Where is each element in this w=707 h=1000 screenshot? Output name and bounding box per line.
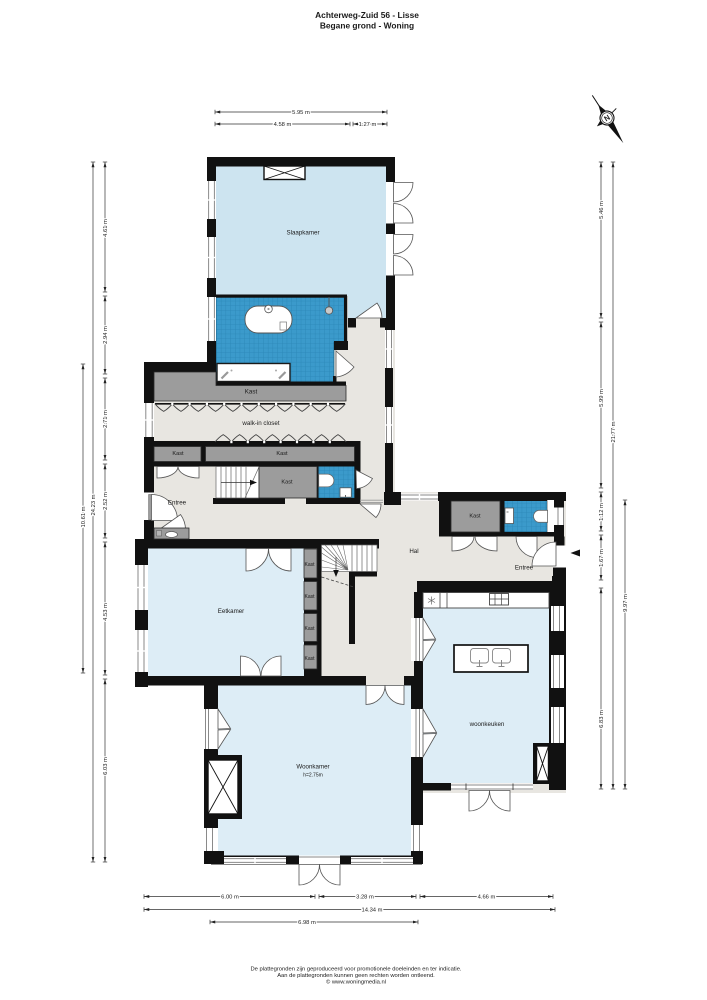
svg-text:© www.woningmedia.nl: © www.woningmedia.nl: [326, 979, 386, 986]
svg-text:Woonkamer: Woonkamer: [296, 764, 329, 771]
svg-text:1.12 m: 1.12 m: [599, 503, 605, 521]
svg-text:woonkeuken: woonkeuken: [469, 721, 505, 728]
svg-text:Entree: Entree: [168, 500, 187, 507]
svg-text:2.71 m: 2.71 m: [103, 410, 109, 428]
svg-text:Kast: Kast: [276, 451, 288, 457]
svg-text:6.98 m: 6.98 m: [298, 920, 316, 926]
svg-text:14.34 m: 14.34 m: [362, 908, 383, 914]
svg-text:1.27 m: 1.27 m: [359, 122, 377, 128]
svg-text:1.67 m: 1.67 m: [599, 549, 605, 567]
svg-text:6.03 m: 6.03 m: [103, 757, 109, 775]
svg-text:5.46 m: 5.46 m: [599, 201, 605, 219]
svg-text:h=2.75m: h=2.75m: [303, 773, 323, 779]
svg-text:2.52 m: 2.52 m: [103, 492, 109, 510]
svg-text:6.00 m: 6.00 m: [221, 895, 239, 901]
svg-text:10.61 m: 10.61 m: [81, 506, 87, 527]
svg-text:6.83 m: 6.83 m: [599, 710, 605, 728]
svg-text:Kast: Kast: [469, 514, 481, 520]
svg-text:4.66 m: 4.66 m: [478, 895, 496, 901]
svg-text:walk-in closet: walk-in closet: [241, 420, 279, 427]
svg-text:5.95 m: 5.95 m: [292, 110, 310, 116]
svg-text:Kast: Kast: [304, 656, 315, 662]
svg-text:21.77 m: 21.77 m: [611, 421, 617, 442]
svg-text:4.61 m: 4.61 m: [103, 219, 109, 237]
svg-text:De plattegronden zijn geproduc: De plattegronden zijn geproduceerd voor …: [250, 967, 461, 973]
svg-text:4.53 m: 4.53 m: [103, 603, 109, 621]
svg-text:3.28 m: 3.28 m: [356, 895, 374, 901]
svg-text:Kast: Kast: [304, 594, 315, 600]
svg-text:Slaapkamer: Slaapkamer: [286, 230, 319, 237]
svg-text:4.58 m: 4.58 m: [274, 122, 292, 128]
svg-text:24.23 m: 24.23 m: [91, 494, 97, 515]
svg-text:5.99 m: 5.99 m: [599, 389, 605, 407]
svg-text:Achterweg-Zuid 56 - Lisse: Achterweg-Zuid 56 - Lisse: [315, 10, 419, 20]
svg-text:Kast: Kast: [172, 451, 184, 457]
svg-text:9.97 m: 9.97 m: [623, 594, 629, 612]
svg-text:Kast: Kast: [245, 389, 258, 396]
svg-text:2.94 m: 2.94 m: [103, 326, 109, 344]
svg-text:Kast: Kast: [281, 480, 293, 486]
svg-text:Hal: Hal: [409, 548, 418, 555]
svg-text:Aan de plattegronden kunnen ge: Aan de plattegronden kunnen geen rechten…: [277, 973, 435, 979]
svg-text:Eetkamer: Eetkamer: [218, 608, 244, 615]
svg-text:Entree: Entree: [515, 565, 534, 572]
svg-text:Kast: Kast: [304, 626, 315, 632]
svg-text:Kast: Kast: [304, 562, 315, 568]
svg-text:Begane grond - Woning: Begane grond - Woning: [320, 21, 414, 31]
